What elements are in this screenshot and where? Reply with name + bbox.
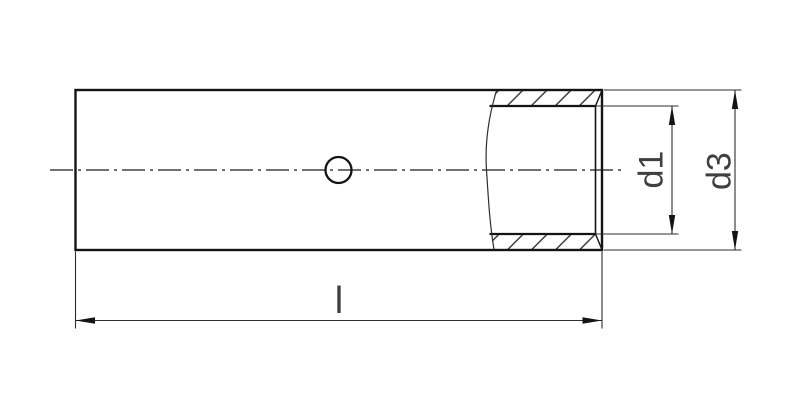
arrowhead-down xyxy=(732,231,738,250)
dimension-label-d3: d3 xyxy=(701,152,739,190)
technical-drawing-page: l d1 d3 xyxy=(0,0,800,406)
arrowhead-right xyxy=(583,317,603,324)
dimension-l: l xyxy=(76,252,603,329)
dimension-label-d1: d1 xyxy=(633,151,671,189)
hatch-top-band xyxy=(490,91,602,106)
arrowhead-down xyxy=(669,215,675,234)
arrowhead-left xyxy=(76,317,96,324)
hatch-bottom-band xyxy=(490,235,602,250)
arrowhead-up xyxy=(732,90,738,109)
tube-section-drawing: l d1 d3 xyxy=(0,0,800,406)
dimension-label-l: l xyxy=(335,280,343,322)
arrowhead-up xyxy=(669,106,675,125)
